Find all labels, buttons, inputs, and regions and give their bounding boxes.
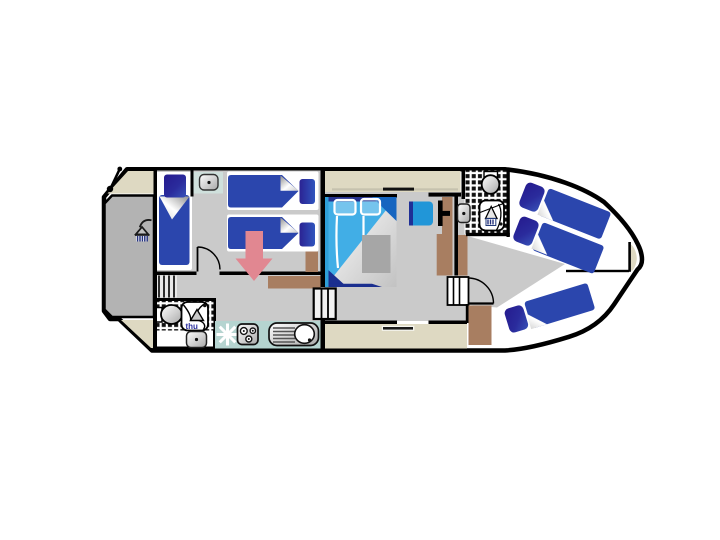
svg-text:thu: thu bbox=[186, 322, 199, 331]
